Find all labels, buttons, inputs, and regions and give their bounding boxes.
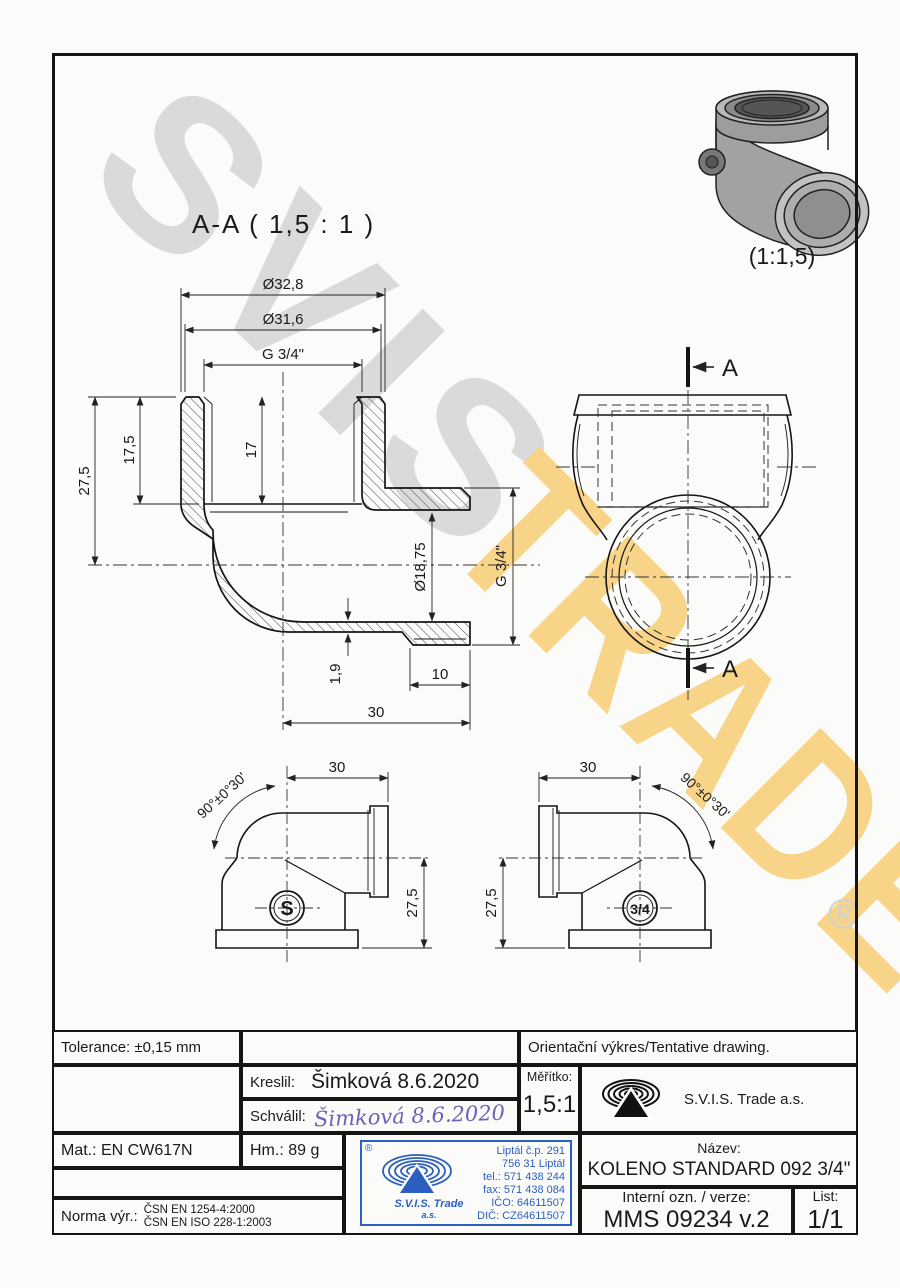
- norma-label: Norma výr.:: [54, 1208, 138, 1225]
- company-cell: S.V.I.S. Trade a.s.: [580, 1065, 858, 1133]
- stamp-line-address1: Liptál č.p. 291: [477, 1145, 565, 1158]
- drawing-sheet: SVIS TRADE ® (1:1,5) A-A ( 1,5 : 1 ): [0, 0, 900, 1288]
- norma-cell: Norma výr.: ČSN EN 1254-4:2000 ČSN EN IS…: [52, 1198, 344, 1235]
- stamp-address: Liptál č.p. 291 756 31 Liptál tel.: 571 …: [477, 1145, 565, 1223]
- meritko-cell: Měřítko: 1,5:1: [519, 1065, 580, 1133]
- tolerance-text: Tolerance: ±0,15 mm: [54, 1039, 201, 1056]
- stamp-line-ico: IČO: 64611507: [477, 1197, 565, 1210]
- weight-text: Hm.: 89 g: [243, 1142, 319, 1160]
- empty-cell-3: [52, 1168, 344, 1198]
- kreslil-cell: Kreslil: Šimková 8.6.2020: [241, 1065, 519, 1099]
- norma-standards: ČSN EN 1254-4:2000 ČSN EN ISO 228-1:2003: [144, 1204, 272, 1230]
- list-label: List:: [813, 1188, 839, 1204]
- weight-cell: Hm.: 89 g: [241, 1133, 344, 1168]
- kreslil-value: Šimková 8.6.2020: [311, 1070, 479, 1094]
- material-text: Mat.: EN CW617N: [54, 1142, 193, 1160]
- company-stamp: ® S.V.I.S. Trade a.s. Liptál č.p. 291 75…: [360, 1140, 572, 1226]
- stamp-line-address2: 756 31 Liptál: [477, 1158, 565, 1171]
- list-value: 1/1: [807, 1204, 843, 1235]
- norma-line-2: ČSN EN ISO 228-1:2003: [144, 1217, 272, 1230]
- orientacni-cell: Orientační výkres/Tentative drawing.: [519, 1030, 858, 1065]
- orientacni-text: Orientační výkres/Tentative drawing.: [521, 1039, 770, 1056]
- interni-cell: Interní ozn. / verze: MMS 09234 v.2: [580, 1187, 793, 1235]
- empty-cell-1: [241, 1030, 519, 1065]
- stamp-line-fax: fax: 571 438 084: [477, 1184, 565, 1197]
- empty-cell-2: [52, 1065, 241, 1133]
- schvalil-label: Schválil:: [243, 1108, 306, 1125]
- list-cell: List: 1/1: [793, 1187, 858, 1235]
- company-name: S.V.I.S. Trade a.s.: [684, 1091, 804, 1108]
- nazev-cell: Název: KOLENO STANDARD 092 3/4": [580, 1133, 858, 1187]
- stamp-logo-icon: [378, 1152, 456, 1196]
- svis-logo-icon: [600, 1076, 662, 1122]
- stamp-line-tel: tel.: 571 438 244: [477, 1171, 565, 1184]
- interni-label: Interní ozn. / verze:: [622, 1189, 750, 1206]
- schvalil-cell: Schválil: Šimková 8.6.2020: [241, 1099, 519, 1133]
- stamp-registered-icon: ®: [365, 1143, 372, 1154]
- nazev-value: KOLENO STANDARD 092 3/4": [588, 1159, 851, 1181]
- meritko-label: Měřítko:: [527, 1070, 572, 1084]
- interni-value: MMS 09234 v.2: [603, 1206, 769, 1234]
- stamp-company-name: S.V.I.S. Trade: [374, 1199, 484, 1210]
- material-cell: Mat.: EN CW617N: [52, 1133, 241, 1168]
- stamp-company-suffix: a.s.: [374, 1210, 484, 1221]
- tolerance-cell: Tolerance: ±0,15 mm: [52, 1030, 241, 1065]
- kreslil-label: Kreslil:: [243, 1074, 295, 1091]
- stamp-company: S.V.I.S. Trade a.s.: [374, 1199, 484, 1221]
- norma-line-1: ČSN EN 1254-4:2000: [144, 1204, 272, 1217]
- nazev-label: Název:: [697, 1140, 741, 1156]
- meritko-value: 1,5:1: [523, 1091, 576, 1119]
- schvalil-signature: Šimková 8.6.2020: [313, 1101, 505, 1132]
- stamp-line-dic: DIČ: CZ64611507: [477, 1210, 565, 1223]
